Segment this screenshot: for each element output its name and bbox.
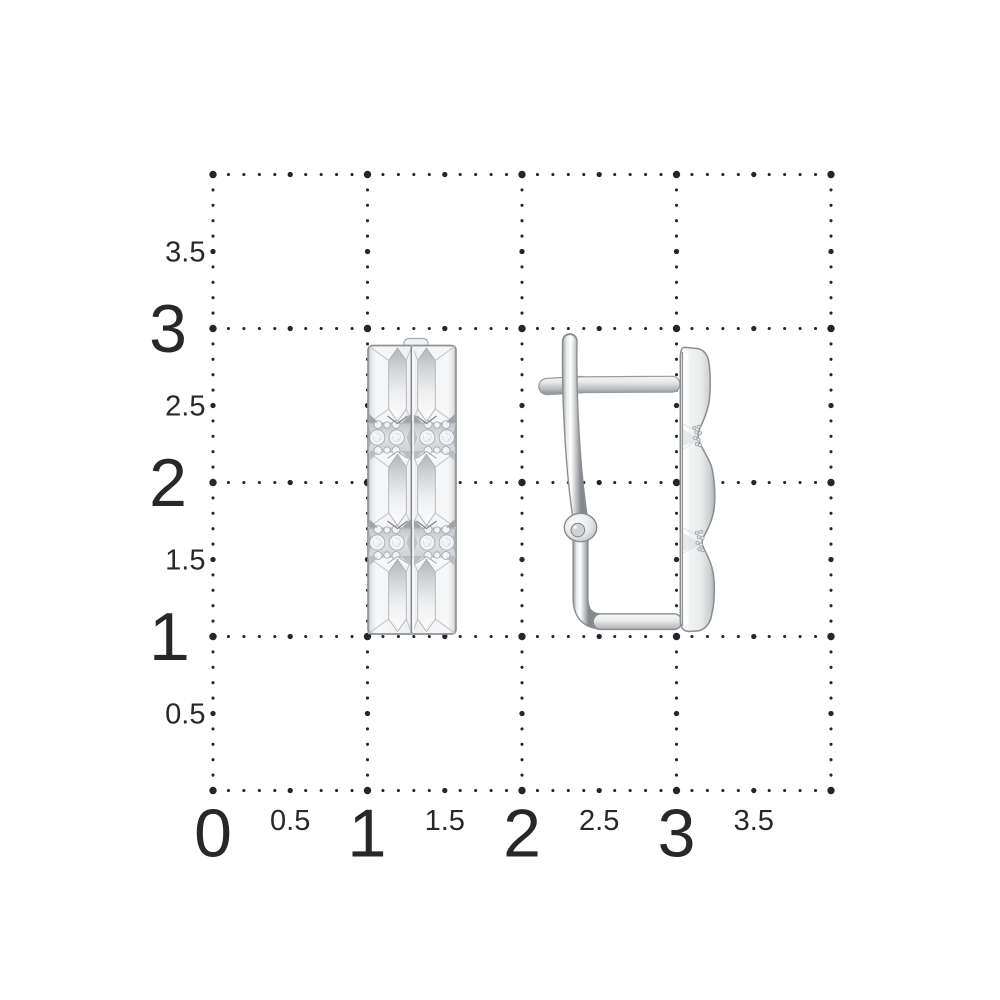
svg-text:0: 0: [194, 796, 232, 872]
svg-text:3: 3: [149, 291, 187, 367]
svg-text:3.5: 3.5: [165, 237, 205, 269]
svg-text:3: 3: [658, 796, 696, 872]
svg-text:0.5: 0.5: [270, 805, 310, 837]
svg-text:0.5: 0.5: [165, 699, 205, 731]
svg-text:1: 1: [149, 599, 187, 675]
svg-text:1.5: 1.5: [425, 805, 465, 837]
svg-text:3.5: 3.5: [734, 805, 774, 837]
svg-text:2.5: 2.5: [579, 805, 619, 837]
svg-text:2: 2: [149, 445, 187, 521]
svg-text:1: 1: [349, 796, 387, 872]
svg-text:2.5: 2.5: [165, 391, 205, 423]
svg-text:2: 2: [503, 796, 541, 872]
svg-text:1.5: 1.5: [165, 545, 205, 577]
